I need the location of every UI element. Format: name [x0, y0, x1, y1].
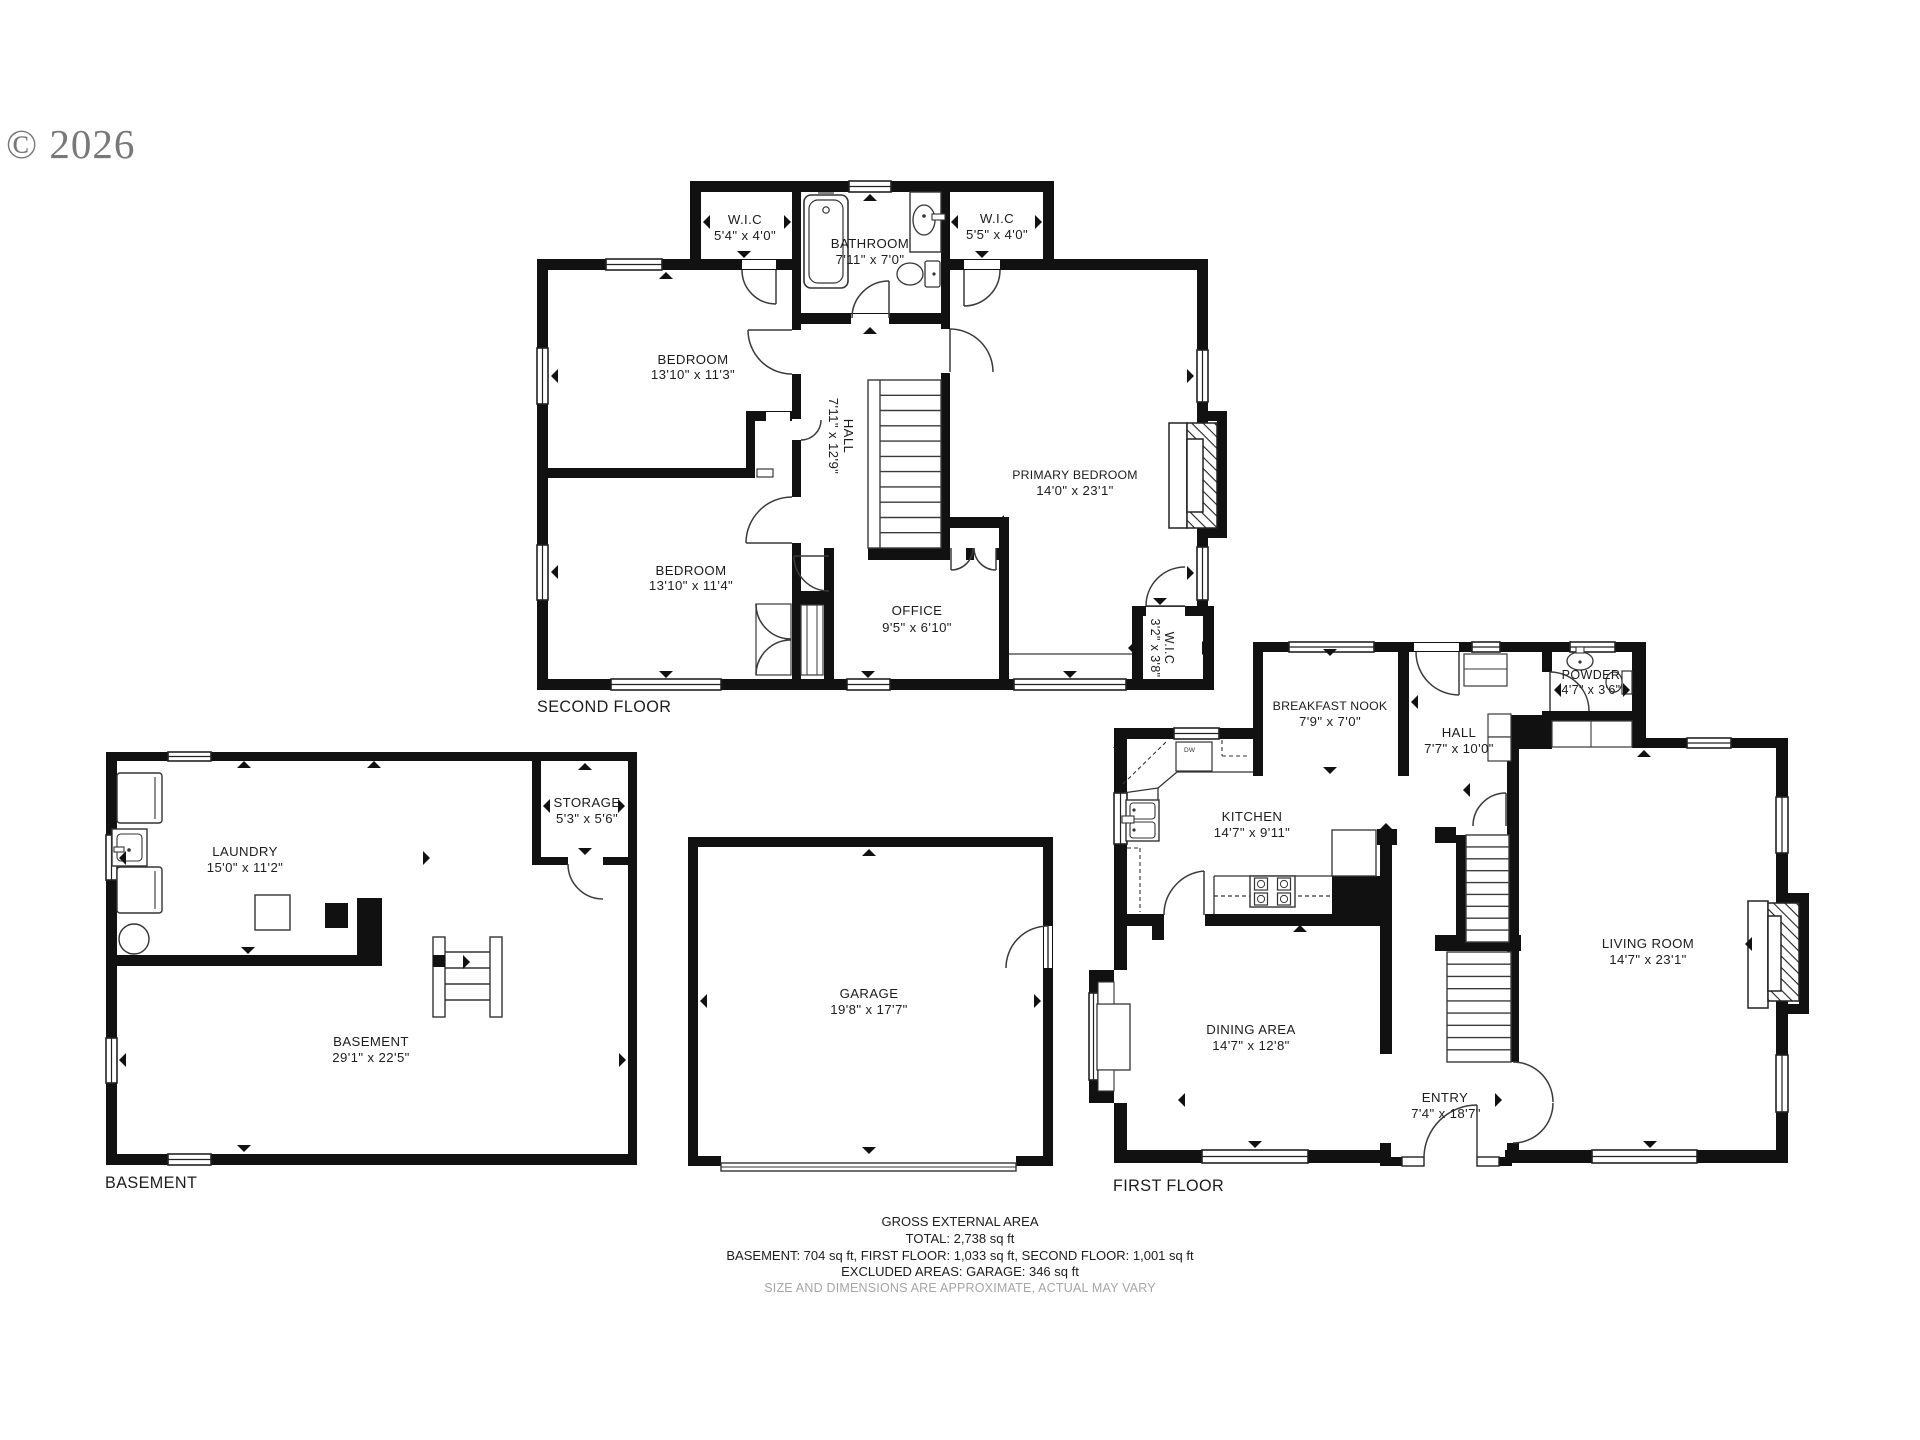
svg-text:19'8" x 17'7": 19'8" x 17'7"	[830, 1002, 908, 1017]
svg-text:OFFICE: OFFICE	[892, 603, 943, 618]
svg-text:BEDROOM: BEDROOM	[658, 352, 729, 367]
svg-text:3'2" x 3'8": 3'2" x 3'8"	[1148, 618, 1162, 677]
svg-text:LAUNDRY: LAUNDRY	[212, 844, 278, 859]
svg-text:29'1" x 22'5": 29'1" x 22'5"	[332, 1050, 410, 1065]
svg-text:W.I.C: W.I.C	[728, 212, 762, 227]
svg-text:HALL: HALL	[841, 419, 856, 454]
svg-text:5'3" x 5'6": 5'3" x 5'6"	[556, 811, 618, 826]
svg-text:15'0" x 11'2": 15'0" x 11'2"	[207, 860, 284, 875]
svg-text:HALL: HALL	[1442, 725, 1477, 740]
svg-text:14'7" x 12'8": 14'7" x 12'8"	[1212, 1038, 1290, 1053]
svg-text:DINING AREA: DINING AREA	[1206, 1022, 1295, 1037]
svg-text:7'11" x 12'9": 7'11" x 12'9"	[826, 398, 841, 475]
svg-text:LIVING ROOM: LIVING ROOM	[1602, 936, 1694, 951]
svg-text:7'4" x 18'7": 7'4" x 18'7"	[1411, 1106, 1481, 1121]
svg-text:BEDROOM: BEDROOM	[656, 563, 727, 578]
svg-text:© 2026: © 2026	[6, 121, 135, 167]
svg-text:BASEMENT: BASEMENT	[105, 1174, 197, 1192]
svg-text:7'9" x 7'0": 7'9" x 7'0"	[1299, 714, 1361, 729]
svg-text:DW: DW	[1184, 747, 1196, 754]
svg-text:TOTAL: 2,738 sq ft: TOTAL: 2,738 sq ft	[906, 1231, 1015, 1246]
svg-text:KITCHEN: KITCHEN	[1222, 809, 1283, 824]
svg-text:9'5" x 6'10": 9'5" x 6'10"	[882, 620, 952, 635]
svg-text:4'7" x 3'6": 4'7" x 3'6"	[1561, 683, 1620, 697]
svg-text:BREAKFAST NOOK: BREAKFAST NOOK	[1273, 699, 1388, 713]
svg-text:7'11" x 7'0": 7'11" x 7'0"	[836, 252, 905, 267]
svg-text:PRIMARY BEDROOM: PRIMARY BEDROOM	[1012, 468, 1138, 482]
svg-text:14'0" x 23'1": 14'0" x 23'1"	[1036, 483, 1114, 498]
svg-text:W.I.C: W.I.C	[1162, 632, 1176, 665]
svg-text:13'10" x 11'4": 13'10" x 11'4"	[649, 578, 733, 593]
svg-text:7'7" x 10'0": 7'7" x 10'0"	[1424, 741, 1494, 756]
svg-text:13'10" x 11'3": 13'10" x 11'3"	[651, 367, 735, 382]
svg-text:ENTRY: ENTRY	[1422, 1090, 1468, 1105]
svg-text:GARAGE: GARAGE	[840, 986, 899, 1001]
svg-text:EXCLUDED AREAS: GARAGE: 346 sq: EXCLUDED AREAS: GARAGE: 346 sq ft	[841, 1264, 1079, 1279]
svg-text:BASEMENT: BASEMENT	[333, 1034, 409, 1049]
svg-text:SECOND FLOOR: SECOND FLOOR	[537, 698, 671, 716]
svg-text:14'7" x 23'1": 14'7" x 23'1"	[1609, 952, 1687, 967]
svg-text:5'5" x 4'0": 5'5" x 4'0"	[966, 227, 1028, 242]
svg-text:14'7" x 9'11": 14'7" x 9'11"	[1214, 825, 1291, 840]
svg-text:GROSS EXTERNAL AREA: GROSS EXTERNAL AREA	[881, 1214, 1038, 1229]
svg-text:FIRST FLOOR: FIRST FLOOR	[1113, 1177, 1224, 1195]
svg-text:POWDER: POWDER	[1562, 668, 1621, 682]
svg-text:BASEMENT: 704 sq ft, FIRST FLO: BASEMENT: 704 sq ft, FIRST FLOOR: 1,033 …	[726, 1248, 1194, 1263]
svg-text:W.I.C: W.I.C	[980, 211, 1014, 226]
svg-text:SIZE AND DIMENSIONS ARE APPROX: SIZE AND DIMENSIONS ARE APPROXIMATE, ACT…	[764, 1281, 1156, 1295]
svg-text:5'4" x 4'0": 5'4" x 4'0"	[714, 228, 776, 243]
svg-text:BATHROOM: BATHROOM	[831, 236, 909, 251]
svg-text:STORAGE: STORAGE	[553, 795, 620, 810]
